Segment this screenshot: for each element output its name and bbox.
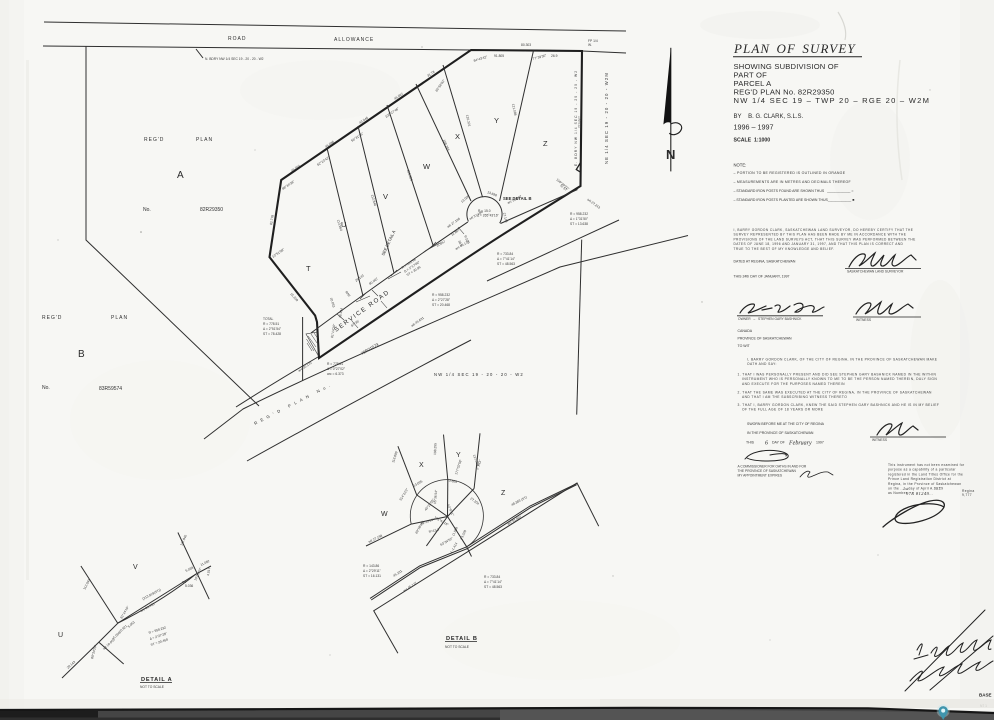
svg-text:Y: Y [494,116,499,125]
svg-text:9,777: 9,777 [962,493,972,497]
svg-text:ST = 78.428: ST = 78.428 [263,332,281,336]
svg-text:ST = 13.638: ST = 13.638 [570,222,588,226]
svg-text:R = 778.51: R = 778.51 [263,322,279,326]
svg-text:IN THE PROVINCE OF SASKATCHEWA: IN THE PROVINCE OF SASKATCHEWAN [747,431,814,435]
svg-text:W: W [423,162,431,171]
svg-text:as Number: as Number [888,491,908,495]
svg-text:1997: 1997 [816,441,824,445]
svg-text:PROVISIONS OF THE LAND SURVEYS: PROVISIONS OF THE LAND SURVEYS ACT, THAT… [734,237,916,241]
svg-text:PLAN: PLAN [111,315,128,321]
svg-text:R = 733.84: R = 733.84 [484,575,500,579]
svg-text:R = 958.232: R = 958.232 [570,212,588,216]
svg-text:BY B. G. CLARK, S.L.S.: BY B. G. CLARK, S.L.S. [734,114,804,120]
svg-text:CANADA: CANADA [738,329,753,333]
svg-text:T: T [306,264,311,273]
svg-text:arc = 6.373: arc = 6.373 [327,372,344,376]
svg-text:– MEASUREMENTS ARE IN METRES A: – MEASUREMENTS ARE IN METRES AND DECIMAL… [734,180,851,184]
svg-text:PROVINCE OF SASKATCHEWAN: PROVINCE OF SASKATCHEWAN [738,337,793,341]
svg-text:ST = 48.563: ST = 48.563 [484,585,502,589]
svg-text:TO WIT: TO WIT [738,344,751,348]
svg-text:OF THE FULL AGE OF 18 YEARS OR: OF THE FULL AGE OF 18 YEARS OR MORE [742,408,824,412]
svg-text:80.303: 80.303 [521,43,531,47]
svg-text:Z: Z [501,490,506,497]
svg-text:Δ = 7°41'14": Δ = 7°41'14" [497,257,516,261]
svg-text:X: X [419,462,424,469]
svg-text:82R29350: 82R29350 [200,207,223,213]
svg-text:Δ = 0°27'02": Δ = 0°27'02" [327,367,346,371]
svg-text:R = 733.84: R = 733.84 [497,252,513,256]
svg-text:REG'D: REG'D [42,315,62,321]
svg-text:DETAIL B: DETAIL B [446,636,478,642]
svg-text:THIS: THIS [746,441,755,445]
svg-text:PLAN OF SURVEY: PLAN OF SURVEY [733,41,856,56]
svg-text:Δ = 2°27'28": Δ = 2°27'28" [432,298,451,302]
svg-text:ROAD: ROAD [228,36,246,42]
svg-text:Prince Land Registration Di: Prince Land Registration District at [888,477,951,481]
svg-text:N: N [666,147,675,162]
svg-text:Z: Z [543,139,548,148]
svg-text:U: U [58,632,63,639]
svg-text:A COMMISSIONER FOR OATHS IN AN: A COMMISSIONER FOR OATHS IN AND FOR [738,465,807,469]
svg-text:BASE: BASE [979,693,992,698]
svg-text:AND EXECUTE FOR THE PURPOSES N: AND EXECUTE FOR THE PURPOSES NAMED THERE… [742,382,845,386]
svg-text:ST = 16.131: ST = 16.131 [363,574,381,578]
svg-text:THIS 24th DAY OF JANUARY, 1997: THIS 24th DAY OF JANUARY, 1997 [734,275,790,279]
svg-text:OATH AND SAY:: OATH AND SAY: [747,362,777,366]
svg-text:I, BARRY GORDON CLARK, SASKATC: I, BARRY GORDON CLARK, SASKATCHEWAN LAND… [734,228,914,232]
svg-text:REG'D: REG'D [144,137,164,143]
svg-text:1996 – 1997: 1996 – 1997 [734,123,774,132]
svg-text:AND THAT I AM THE SUBSCRIBING: AND THAT I AM THE SUBSCRIBING WITNESS TH… [742,395,847,399]
svg-text:February: February [788,441,812,447]
svg-text:This instrument has not been e: This instrument has not been examined fo… [888,463,965,467]
svg-text:V: V [383,192,388,201]
svg-text:TRUE TO THE BEST OF MY KNOWLED: TRUE TO THE BEST OF MY KNOWLEDGE AND BEL… [734,247,835,251]
svg-text:PLAN: PLAN [196,137,213,143]
svg-text:THE PROVINCE OF SASKATCHEWAN: THE PROVINCE OF SASKATCHEWAN [738,469,797,473]
svg-text:ST = 48.563: ST = 48.563 [497,262,515,266]
svg-text:2. THAT THE SAME WAS EXECUTED: 2. THAT THE SAME WAS EXECUTED AT THE CIT… [738,391,933,395]
svg-text:W: W [381,511,388,518]
svg-text:DATED AT REGINA, SASKATCHEWAN: DATED AT REGINA, SASKATCHEWAN [734,260,796,264]
svg-text:DETAIL A: DETAIL A [141,677,172,683]
svg-text:V: V [133,564,138,571]
svg-text:NOT TO SCALE: NOT TO SCALE [140,685,165,689]
svg-text:R = 143.86: R = 143.86 [363,564,379,568]
svg-text:SWORN BEFORE ME AT THE CITY OF: SWORN BEFORE ME AT THE CITY OF REGINA [747,422,825,426]
svg-text:Regina, in the Province of Sas: Regina, in the Province of Saskatchewan [888,482,961,486]
svg-text:Δ = 1°31'50": Δ = 1°31'50" [570,217,589,221]
svg-text:26.9: 26.9 [551,54,558,58]
svg-text:....: .... [928,492,933,496]
svg-text:W.: W. [588,43,592,47]
svg-text:X: X [455,132,460,141]
svg-text:Δ = 7°41'14": Δ = 7°41'14" [484,580,503,584]
svg-text:DAY OF: DAY OF [772,441,785,445]
svg-text:Y: Y [456,452,461,459]
svg-text:SURVEY REPRESENTED BY THIS PLA: SURVEY REPRESENTED BY THIS PLAN HAS BEEN… [734,233,907,237]
svg-text:– STANDARD IRON POSTS FOUND AR: – STANDARD IRON POSTS FOUND ARE SHOWN TH… [734,189,854,193]
svg-text:NOT TO SCALE: NOT TO SCALE [445,645,470,649]
svg-text:NE 1/4 SEC 19 - 20 - 20 - W2M: NE 1/4 SEC 19 - 20 - 20 - W2M [604,72,609,164]
svg-text:R = 778.51: R = 778.51 [327,362,343,366]
svg-text:R = 958.232: R = 958.232 [432,293,450,297]
svg-text:SASKATCHEWAN LAND SURVEYOR: SASKATCHEWAN LAND SURVEYOR [847,270,904,274]
svg-text:Δ = 2°29'11": Δ = 2°29'11" [363,569,382,573]
svg-text:Δ = 2°51'54": Δ = 2°51'54" [263,327,282,331]
svg-text:– PORTION TO BE REGISTERED IS: – PORTION TO BE REGISTERED IS OUTLINED I… [734,171,846,175]
svg-text:ST = 20.468: ST = 20.468 [432,303,450,307]
svg-text:91.805: 91.805 [494,54,504,58]
svg-text:3. THAT I, BARRY GORDON CLARK,: 3. THAT I, BARRY GORDON CLARK, KNEW THE … [738,403,940,407]
svg-text:OWNER – STEPHEN GARY BASHN: OWNER – STEPHEN GARY BASHNICK [738,317,802,321]
svg-text:NW 1/4 SEC 19 – TWP 20 – RGE 2: NW 1/4 SEC 19 – TWP 20 – RGE 20 – W2M [734,96,931,105]
svg-text:NOTE:: NOTE: [734,163,747,168]
svg-text:DATES OF JUNE 18, 1996 AND JAN: DATES OF JUNE 18, 1996 AND JANUARY 31, 1… [734,242,904,246]
svg-text:1. THAT I WAS PERSONALLY PRESE: 1. THAT I WAS PERSONALLY PRESENT AND DID… [738,373,937,377]
svg-text:A: A [177,170,184,181]
svg-text:5.036: 5.036 [185,584,193,588]
svg-text:I, BARRY GORDON CLARK, OF THE: I, BARRY GORDON CLARK, OF THE CITY OF RE… [747,358,938,362]
svg-text:83R59574: 83R59574 [99,386,122,392]
svg-text:MY APPOINTMENT EXPIRES: MY APPOINTMENT EXPIRES [738,474,783,478]
svg-text:6: 6 [765,441,768,447]
svg-text:B: B [78,349,85,360]
svg-text:purpose as a capability of a p: purpose as a capability of a particular [888,468,956,472]
svg-text:ALLOWANCE: ALLOWANCE [334,37,374,43]
svg-text:SCALE 1:1000: SCALE 1:1000 [734,138,771,144]
svg-text:TOTAL: TOTAL [263,317,273,321]
svg-text:No.: No. [42,385,50,391]
svg-text:– STANDARD IRON POSTS PLANTED: – STANDARD IRON POSTS PLANTED ARE SHOWN … [734,198,855,202]
svg-text:109.012: 109.012 [578,116,582,128]
svg-text:INSTRUMENT WHO IS PERSONALLY K: INSTRUMENT WHO IS PERSONALLY KNOWN TO ME… [742,377,937,381]
svg-text:No.: No. [143,207,151,213]
svg-text:108.255: 108.255 [433,443,437,455]
svg-text:E. BDRY NW 1/4 SEC 19 - 20 - 2: E. BDRY NW 1/4 SEC 19 - 20 - 20 - W2 [574,70,578,166]
svg-text:WITNESS: WITNESS [856,318,872,322]
svg-text:97R 81249: 97R 81249 [906,491,929,496]
svg-text:97: 97 [936,486,941,491]
svg-text:N. BDRY NW 1/4 SEC 19 - 20 - 2: N. BDRY NW 1/4 SEC 19 - 20 - 20 - W2 [205,57,264,61]
svg-text:registered in the Land Titles: registered in the Land Titles Office for… [888,472,963,476]
svg-text:NW 1/4 SEC 19 - 20 - 20 - W2: NW 1/4 SEC 19 - 20 - 20 - W2 [434,372,524,377]
svg-text:WITNESS: WITNESS [872,438,888,442]
